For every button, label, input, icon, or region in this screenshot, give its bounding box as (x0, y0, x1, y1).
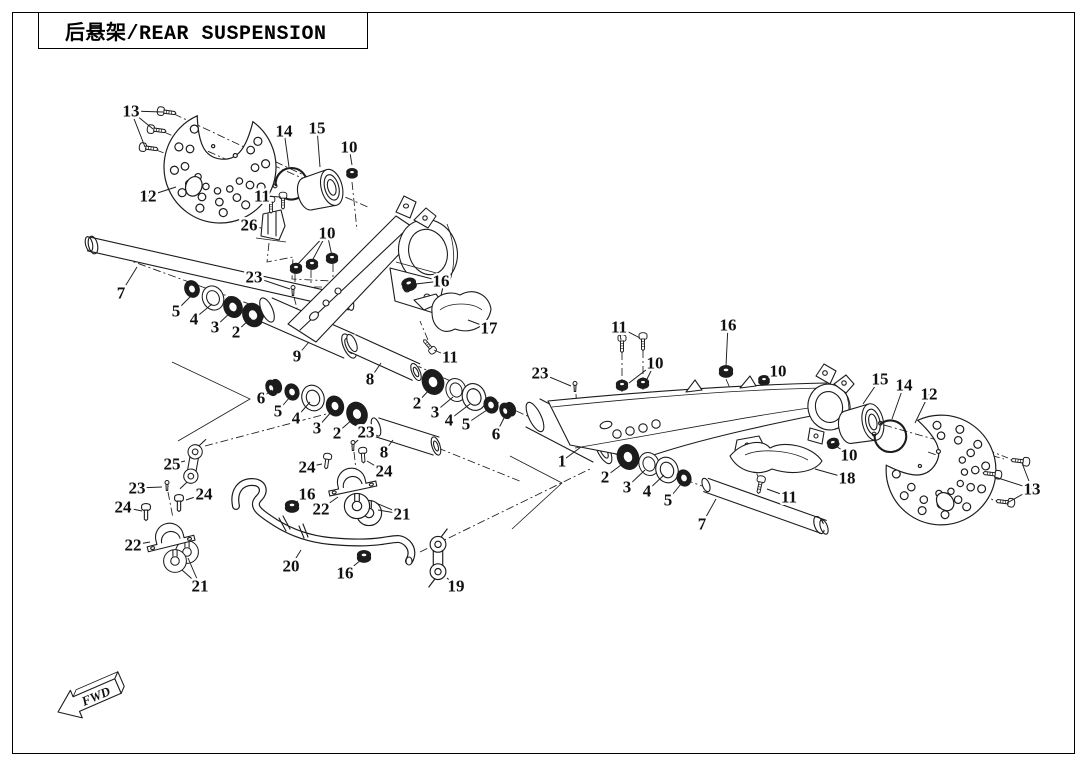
callout-2: 2 (232, 323, 241, 342)
callout-26: 26 (241, 216, 258, 235)
rear-suspension-exploded-diagram: FWD 131214151011261023754329161711823456… (0, 0, 1089, 765)
callout-23: 23 (129, 479, 146, 498)
callout-3: 3 (431, 403, 440, 422)
callout-24: 24 (196, 485, 214, 504)
callout-4: 4 (445, 411, 454, 430)
callout-5: 5 (664, 491, 673, 510)
nut-16 (719, 366, 732, 378)
callout-11: 11 (611, 318, 627, 337)
callout-6: 6 (492, 425, 501, 444)
page-title: 后悬架/REAR SUSPENSION (65, 16, 327, 46)
callout-8: 8 (380, 443, 389, 462)
stabilizer-link-25 (180, 436, 206, 491)
callout-13: 13 (1024, 480, 1041, 499)
callout-11: 11 (442, 348, 458, 367)
callout-9: 9 (293, 347, 302, 366)
callout-22: 22 (125, 536, 142, 555)
callout-19: 19 (448, 577, 465, 596)
screw-24 (358, 447, 367, 463)
callout-18: 18 (839, 469, 856, 488)
bushing-21-mid (344, 493, 381, 525)
callout-24: 24 (299, 458, 317, 477)
screw-24 (142, 504, 151, 521)
grease-fitting-23 (165, 481, 169, 491)
nut-10 (616, 380, 627, 390)
grease-fitting-23 (351, 441, 355, 451)
mud-deflector-right (730, 436, 822, 473)
callout-16: 16 (433, 272, 450, 291)
callout-5: 5 (462, 415, 471, 434)
callout-22: 22 (313, 500, 330, 519)
callout-2: 2 (413, 394, 422, 413)
callout-13: 13 (123, 102, 140, 121)
callout-14: 14 (276, 122, 294, 141)
callout-4: 4 (190, 310, 199, 329)
callout-4: 4 (643, 482, 652, 501)
callout-3: 3 (313, 419, 322, 438)
callout-15: 15 (309, 119, 326, 138)
title-block: 后悬架/REAR SUSPENSION (38, 12, 368, 49)
callout-24: 24 (376, 462, 394, 481)
nut-16 (357, 551, 370, 563)
callout-10: 10 (841, 446, 858, 465)
fwd-label: FWD (78, 683, 113, 709)
bolt-11 (754, 475, 766, 494)
callout-12: 12 (921, 385, 938, 404)
spacer-tube-8a (345, 333, 424, 382)
callout-14: 14 (896, 376, 914, 395)
callout-21: 21 (394, 505, 411, 524)
stabilizer-link-19 (429, 529, 448, 588)
callout-3: 3 (623, 478, 632, 497)
callout-16: 16 (337, 564, 354, 583)
callout-12: 12 (140, 187, 157, 206)
callout-2: 2 (601, 468, 610, 487)
callout-15: 15 (872, 370, 889, 389)
callout-21: 21 (192, 577, 209, 596)
callout-23: 23 (532, 364, 549, 383)
grease-fitting-23 (573, 382, 577, 392)
nut-10 (347, 169, 358, 179)
screw-24 (175, 495, 184, 512)
pivot-shaft-right (700, 477, 830, 535)
bracket-26 (256, 210, 286, 242)
callout-16: 16 (720, 316, 737, 335)
mud-deflector-left (414, 292, 491, 331)
bolt-11 (639, 333, 647, 351)
parts-catalog-page: { "title": { "text": "后悬架/REAR SUSPENSIO… (0, 0, 1089, 765)
callout-23: 23 (246, 268, 263, 287)
callout-7: 7 (698, 515, 707, 534)
callout-11: 11 (254, 187, 270, 206)
nut-10 (290, 263, 301, 273)
callout-23: 23 (358, 423, 375, 442)
callout-10: 10 (647, 354, 664, 373)
callout-11: 11 (781, 488, 797, 507)
fwd-arrow: FWD (58, 672, 124, 718)
brake-disc-guard-left (158, 113, 280, 229)
callout-25: 25 (164, 455, 181, 474)
callout-10: 10 (319, 224, 336, 243)
callout-17: 17 (481, 319, 499, 338)
callout-1: 1 (558, 452, 567, 471)
callout-7: 7 (117, 284, 126, 303)
nut-10 (759, 376, 770, 386)
callout-10: 10 (770, 362, 787, 381)
callout-6: 6 (257, 389, 266, 408)
clamp-22-mid (325, 463, 377, 495)
callout-10: 10 (341, 138, 358, 157)
callout-5: 5 (274, 402, 283, 421)
bolt-11 (421, 337, 438, 355)
bolt-11 (618, 335, 626, 353)
callout-4: 4 (292, 409, 301, 428)
callout-24: 24 (115, 498, 133, 517)
stabilizer-bar-20 (235, 482, 412, 565)
callout-20: 20 (283, 557, 300, 576)
screw-24 (322, 453, 332, 469)
bolt-11 (279, 192, 287, 209)
callout-8: 8 (366, 370, 375, 389)
callout-2: 2 (333, 424, 342, 443)
callout-3: 3 (211, 318, 220, 337)
callout-5: 5 (172, 302, 181, 321)
